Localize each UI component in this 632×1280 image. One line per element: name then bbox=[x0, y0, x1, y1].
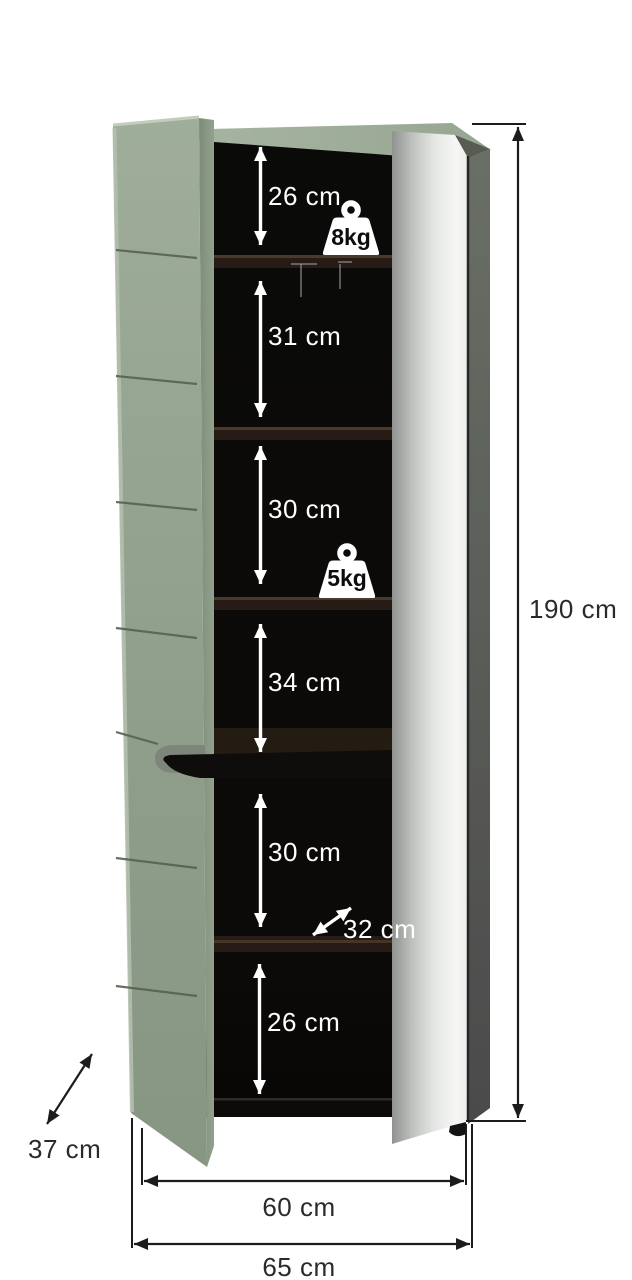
section-3-label: 30 cm bbox=[268, 494, 341, 524]
inner-width-label: 60 cm bbox=[262, 1192, 335, 1222]
inner-depth-label: 32 cm bbox=[343, 914, 416, 944]
right-door-mirror bbox=[392, 131, 490, 1144]
load-8kg-label: 8kg bbox=[331, 224, 371, 250]
load-5kg-label: 5kg bbox=[327, 565, 367, 591]
depth-dim: 37 cm bbox=[28, 1054, 101, 1164]
shelf-1 bbox=[206, 255, 392, 268]
section-1-label: 26 cm bbox=[268, 181, 341, 211]
diagram-canvas: 26 cm 31 cm 30 cm 34 cm 30 cm 26 cm 32 c… bbox=[0, 0, 632, 1280]
section-5-label: 30 cm bbox=[268, 837, 341, 867]
section-2-label: 31 cm bbox=[268, 321, 341, 351]
left-door-green bbox=[113, 117, 214, 1167]
door-front bbox=[113, 118, 207, 1167]
total-height-label: 190 cm bbox=[529, 594, 617, 624]
arrow-diagonal bbox=[47, 1054, 92, 1124]
side-panel bbox=[468, 149, 490, 1124]
interior-back-panel bbox=[206, 133, 392, 1117]
depth-label: 37 cm bbox=[28, 1134, 101, 1164]
section-6-label: 26 cm bbox=[267, 1007, 340, 1037]
mirror-front bbox=[392, 131, 468, 1144]
total-width-label: 65 cm bbox=[262, 1252, 335, 1280]
cabinet-interior bbox=[206, 133, 392, 1117]
section-4-label: 34 cm bbox=[268, 667, 341, 697]
cabinet-dimension-diagram: 26 cm 31 cm 30 cm 34 cm 30 cm 26 cm 32 c… bbox=[0, 0, 632, 1280]
shelf-3 bbox=[206, 597, 392, 610]
shelf-2 bbox=[206, 427, 392, 440]
console-top bbox=[206, 728, 392, 754]
cabinet-base bbox=[206, 1098, 392, 1117]
